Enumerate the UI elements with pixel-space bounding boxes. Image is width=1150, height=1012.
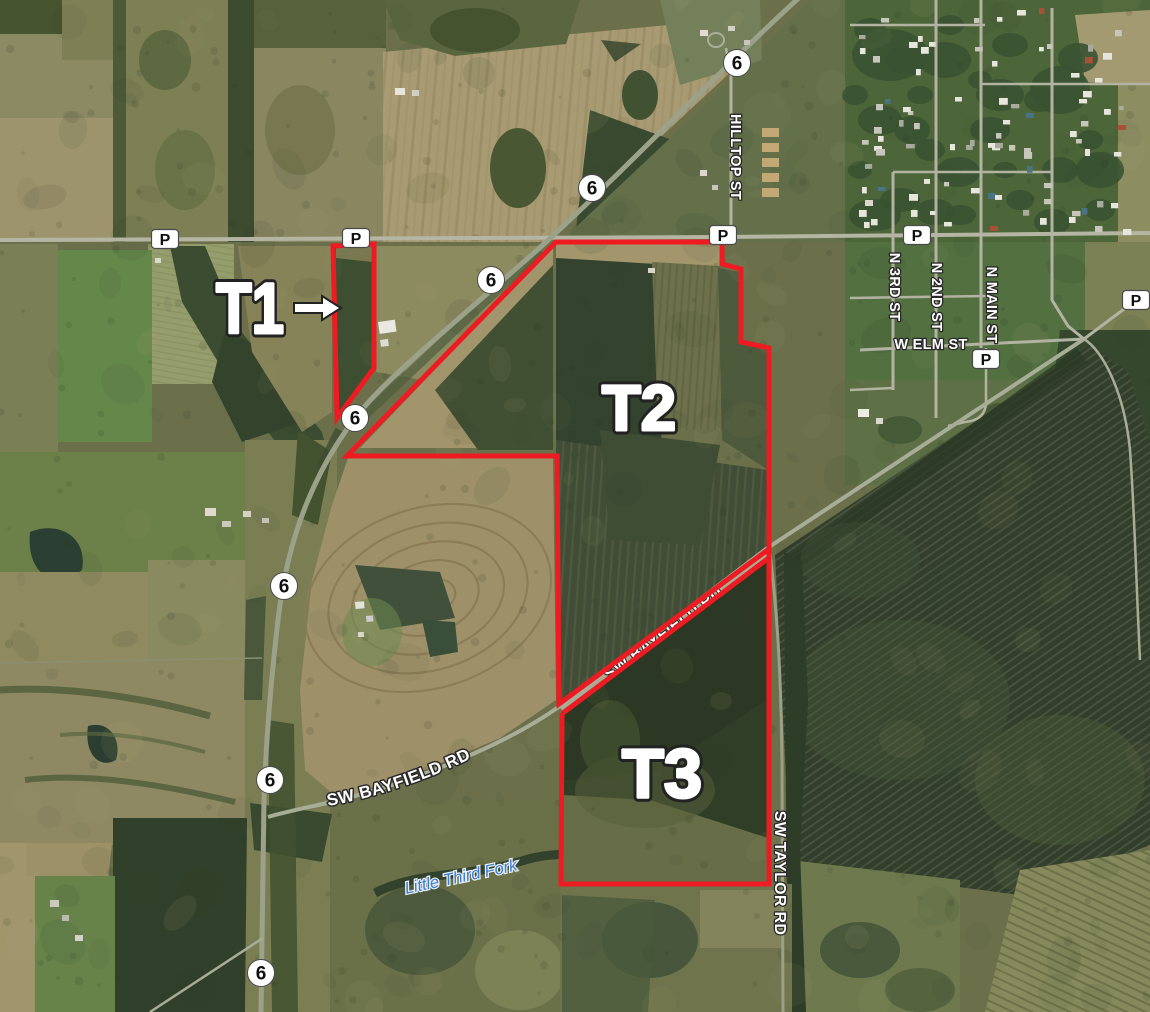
svg-text:HILLTOP ST: HILLTOP ST	[727, 114, 743, 200]
svg-text:6: 6	[265, 771, 276, 792]
svg-text:P: P	[1131, 293, 1142, 310]
svg-text:T3: T3	[622, 735, 702, 812]
svg-text:6: 6	[279, 577, 290, 598]
svg-text:P: P	[718, 228, 729, 245]
svg-text:P: P	[912, 228, 923, 245]
svg-text:6: 6	[732, 54, 743, 75]
svg-text:6: 6	[486, 271, 497, 292]
svg-text:T1: T1	[216, 270, 284, 349]
svg-text:P: P	[351, 231, 362, 248]
svg-text:P: P	[981, 352, 992, 369]
svg-text:6: 6	[350, 409, 361, 430]
svg-text:N MAIN ST: N MAIN ST	[983, 267, 999, 344]
svg-text:N 2ND ST: N 2ND ST	[928, 263, 944, 331]
svg-text:6: 6	[587, 179, 598, 200]
svg-text:SW TAYLOR RD: SW TAYLOR RD	[771, 811, 788, 936]
svg-text:6: 6	[256, 964, 267, 985]
svg-text:N 3RD ST: N 3RD ST	[886, 253, 902, 321]
svg-text:T2: T2	[602, 372, 676, 444]
svg-text:W ELM ST: W ELM ST	[894, 337, 967, 353]
svg-text:P: P	[160, 232, 171, 249]
